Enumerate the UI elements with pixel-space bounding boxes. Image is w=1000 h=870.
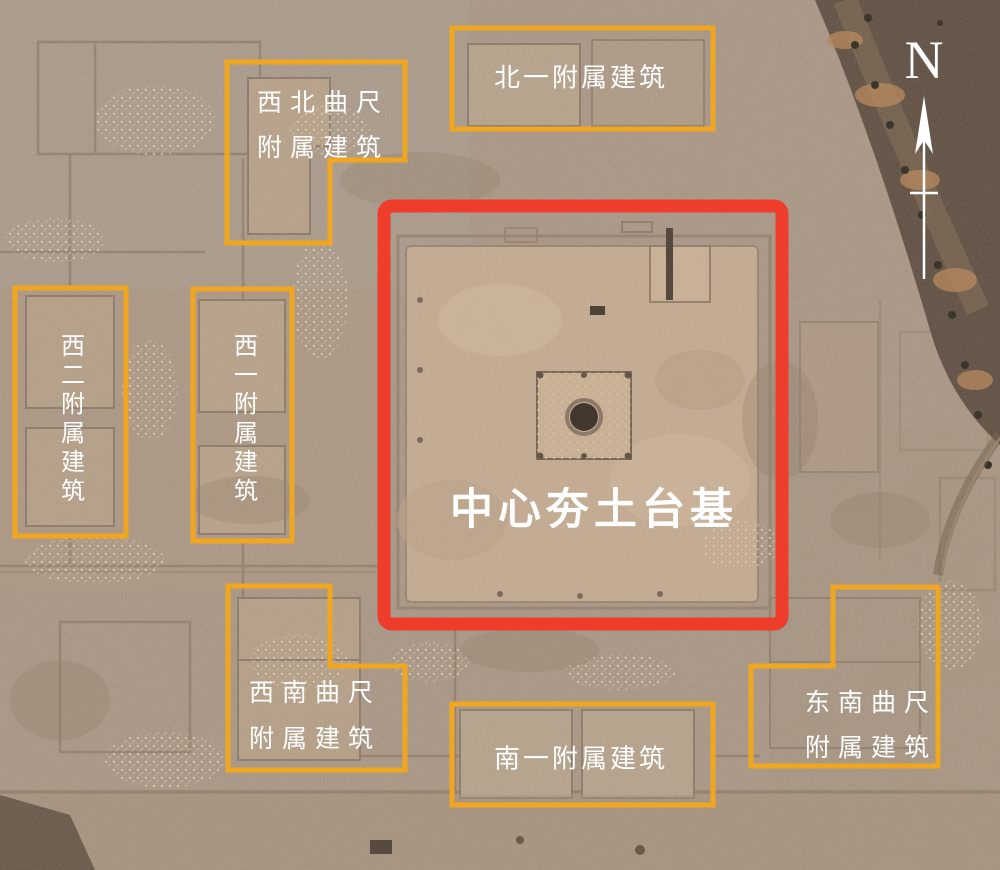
aerial-site-photo: 北一附属建筑 西北曲尺 附属建筑 西二附属建筑 西一附属建筑 中心夯土台基 西南… (0, 0, 1000, 870)
label-southwest-line1: 西南曲尺 (249, 673, 381, 709)
north-arrow (910, 96, 938, 279)
label-southeast-line1: 东南曲尺 (805, 683, 937, 719)
label-west1-building: 西一附属建筑 (226, 333, 261, 507)
label-northwest-line2: 附属建筑 (257, 128, 389, 164)
label-central-platform: 中心夯土台基 (450, 475, 738, 537)
label-southeast-line2: 附属建筑 (805, 728, 937, 764)
label-southwest-line2: 附属建筑 (249, 719, 381, 755)
label-west2-building: 西二附属建筑 (53, 333, 88, 507)
label-northwest-line1: 西北曲尺 (257, 83, 389, 119)
compass-n-letter: N (905, 29, 944, 91)
annotation-box-center (384, 206, 782, 624)
label-north-building: 北一附属建筑 (494, 58, 668, 95)
label-south-building: 南一附属建筑 (494, 739, 668, 776)
